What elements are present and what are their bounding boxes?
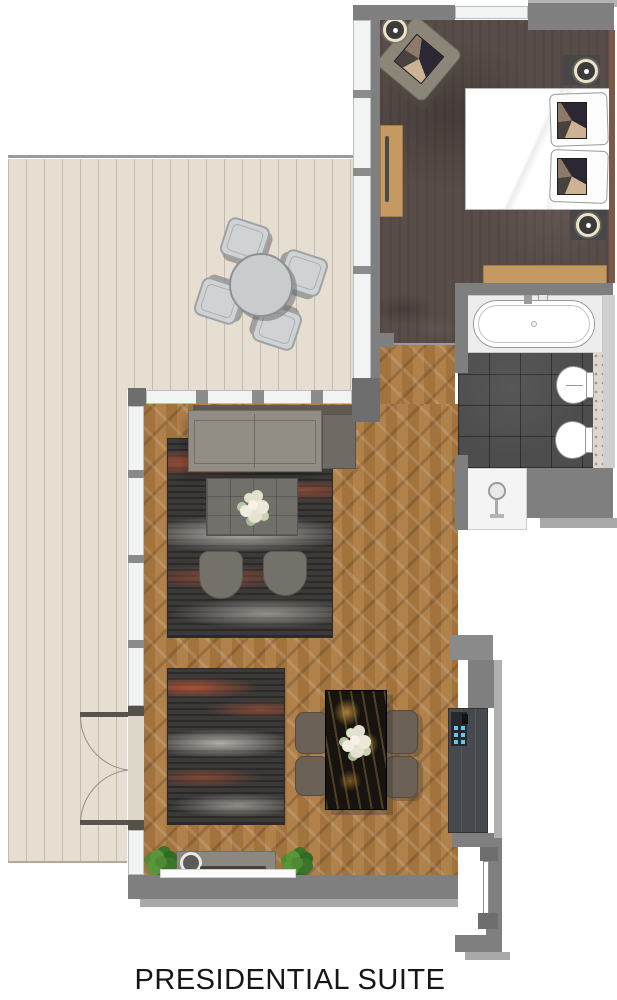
potted-plant (291, 857, 303, 869)
door-threshold (394, 343, 455, 345)
terrace-bottom-line (8, 861, 127, 863)
wall-outer-south (140, 899, 460, 907)
terrace-table (229, 253, 293, 317)
wall-living-south (128, 875, 458, 899)
wall-shower-block (527, 468, 613, 518)
plan-title: PRESIDENTIAL SUITE (110, 964, 470, 997)
wall-corner-block (352, 378, 380, 422)
minibar-bottles (454, 726, 458, 730)
lounge-rug (167, 668, 285, 825)
shower-base (490, 514, 504, 518)
window-mullion (128, 470, 144, 478)
window-mullion (353, 266, 371, 274)
accent-cushion (557, 102, 587, 139)
ceiling-light (576, 213, 600, 237)
door-jamb (128, 706, 144, 716)
entry-door-leaf (483, 861, 489, 915)
pouf-stool (199, 551, 243, 599)
coffee-table-flowers (248, 500, 258, 510)
shower-head (488, 482, 506, 500)
wall-bedroom-top (353, 5, 455, 20)
bedroom-tv-console (380, 125, 403, 217)
window-mullion (252, 390, 264, 404)
dining-table (325, 690, 387, 810)
dining-chair (384, 710, 418, 754)
wall-entry-south (455, 935, 502, 952)
window-mullion (128, 555, 144, 563)
window-bedroom-top (455, 6, 528, 19)
terrace-door-opening (128, 716, 144, 820)
window-bedroom-west (353, 20, 371, 388)
dining-chair (295, 756, 329, 796)
wall-stub (376, 333, 394, 347)
pouf-stool (263, 551, 307, 596)
floor-plan: PRESIDENTIAL SUITE (0, 0, 617, 1000)
door-jamb (128, 820, 144, 830)
wall-bathroom-west-upper (455, 295, 468, 373)
window-sill (160, 869, 296, 878)
window-mullion (353, 90, 371, 98)
minibar-display (462, 714, 468, 724)
wall-bathroom-east-outer (603, 295, 615, 468)
wall-corner-nw (128, 388, 146, 406)
sofa-seat-line (194, 420, 316, 464)
ceiling-light (383, 18, 407, 42)
wall-entry-east-upper (468, 660, 494, 708)
entry-door-jamb (480, 847, 498, 861)
dining-chair (295, 712, 329, 754)
wall-top-right-block (528, 3, 614, 30)
corridor-floor (380, 345, 455, 407)
window-mullion (196, 390, 208, 404)
terrace-edge-line (8, 155, 356, 158)
bathtub-drain (531, 321, 537, 327)
window-mullion (353, 168, 371, 176)
wall-outer-band (540, 518, 617, 528)
sofa-side-table (322, 414, 356, 469)
entry-door-jamb (478, 913, 498, 929)
dining-chair (384, 756, 418, 798)
accent-cushion (557, 158, 587, 195)
wall-outer-entry-south (465, 952, 510, 960)
window-mullion (128, 640, 144, 648)
wall-bathroom-west-lower (455, 455, 468, 530)
tv-panel (385, 136, 389, 202)
wall-bathroom-north (455, 283, 613, 295)
wall-wood-finish-right (609, 30, 615, 283)
dining-table-flowers (350, 735, 360, 745)
window-mullion (311, 390, 323, 404)
ceiling-light (574, 59, 598, 83)
potted-plant (155, 856, 167, 868)
window-living-west-lower (128, 830, 144, 875)
wall-entry-north (450, 635, 493, 660)
